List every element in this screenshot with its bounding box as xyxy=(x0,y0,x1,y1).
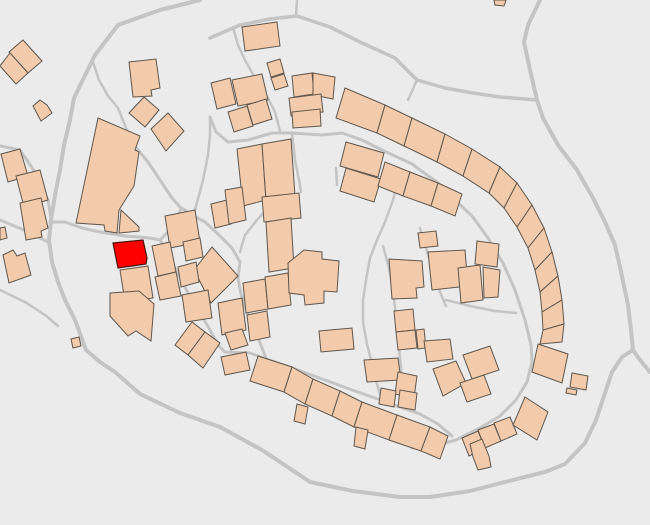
building-footprint xyxy=(319,328,354,352)
building-footprint xyxy=(247,311,270,341)
building-footprint xyxy=(364,358,401,382)
building-footprint xyxy=(458,265,483,303)
building-footprint xyxy=(178,262,199,287)
building-footprint xyxy=(262,193,301,222)
map-viewport xyxy=(0,0,650,525)
building-footprint xyxy=(265,273,291,309)
building-footprint xyxy=(394,309,415,332)
building-footprint xyxy=(424,339,453,362)
building-footprint xyxy=(225,187,246,224)
building-footprint xyxy=(242,22,280,51)
building-footprint xyxy=(262,139,295,200)
building-footprint xyxy=(570,373,588,390)
building-footprint xyxy=(494,0,506,6)
building-footprint xyxy=(398,390,417,410)
building-footprint xyxy=(418,231,438,248)
building-footprint xyxy=(155,272,181,300)
building-footprint xyxy=(182,290,212,322)
road-path xyxy=(296,0,297,16)
building-footprint xyxy=(243,279,268,313)
building-footprint xyxy=(475,241,499,267)
building-footprint xyxy=(292,73,314,97)
building-footprint xyxy=(292,109,321,128)
highlight-layer xyxy=(113,240,147,268)
building-footprint xyxy=(354,427,368,449)
map-canvas[interactable] xyxy=(0,0,650,525)
road-path xyxy=(336,168,337,185)
building-footprint xyxy=(71,337,81,348)
highlighted-building[interactable] xyxy=(113,240,147,268)
building-footprint xyxy=(396,330,417,350)
building-footprint xyxy=(483,267,500,298)
building-footprint xyxy=(183,238,203,261)
building-footprint xyxy=(294,404,308,424)
building-footprint xyxy=(379,388,396,407)
